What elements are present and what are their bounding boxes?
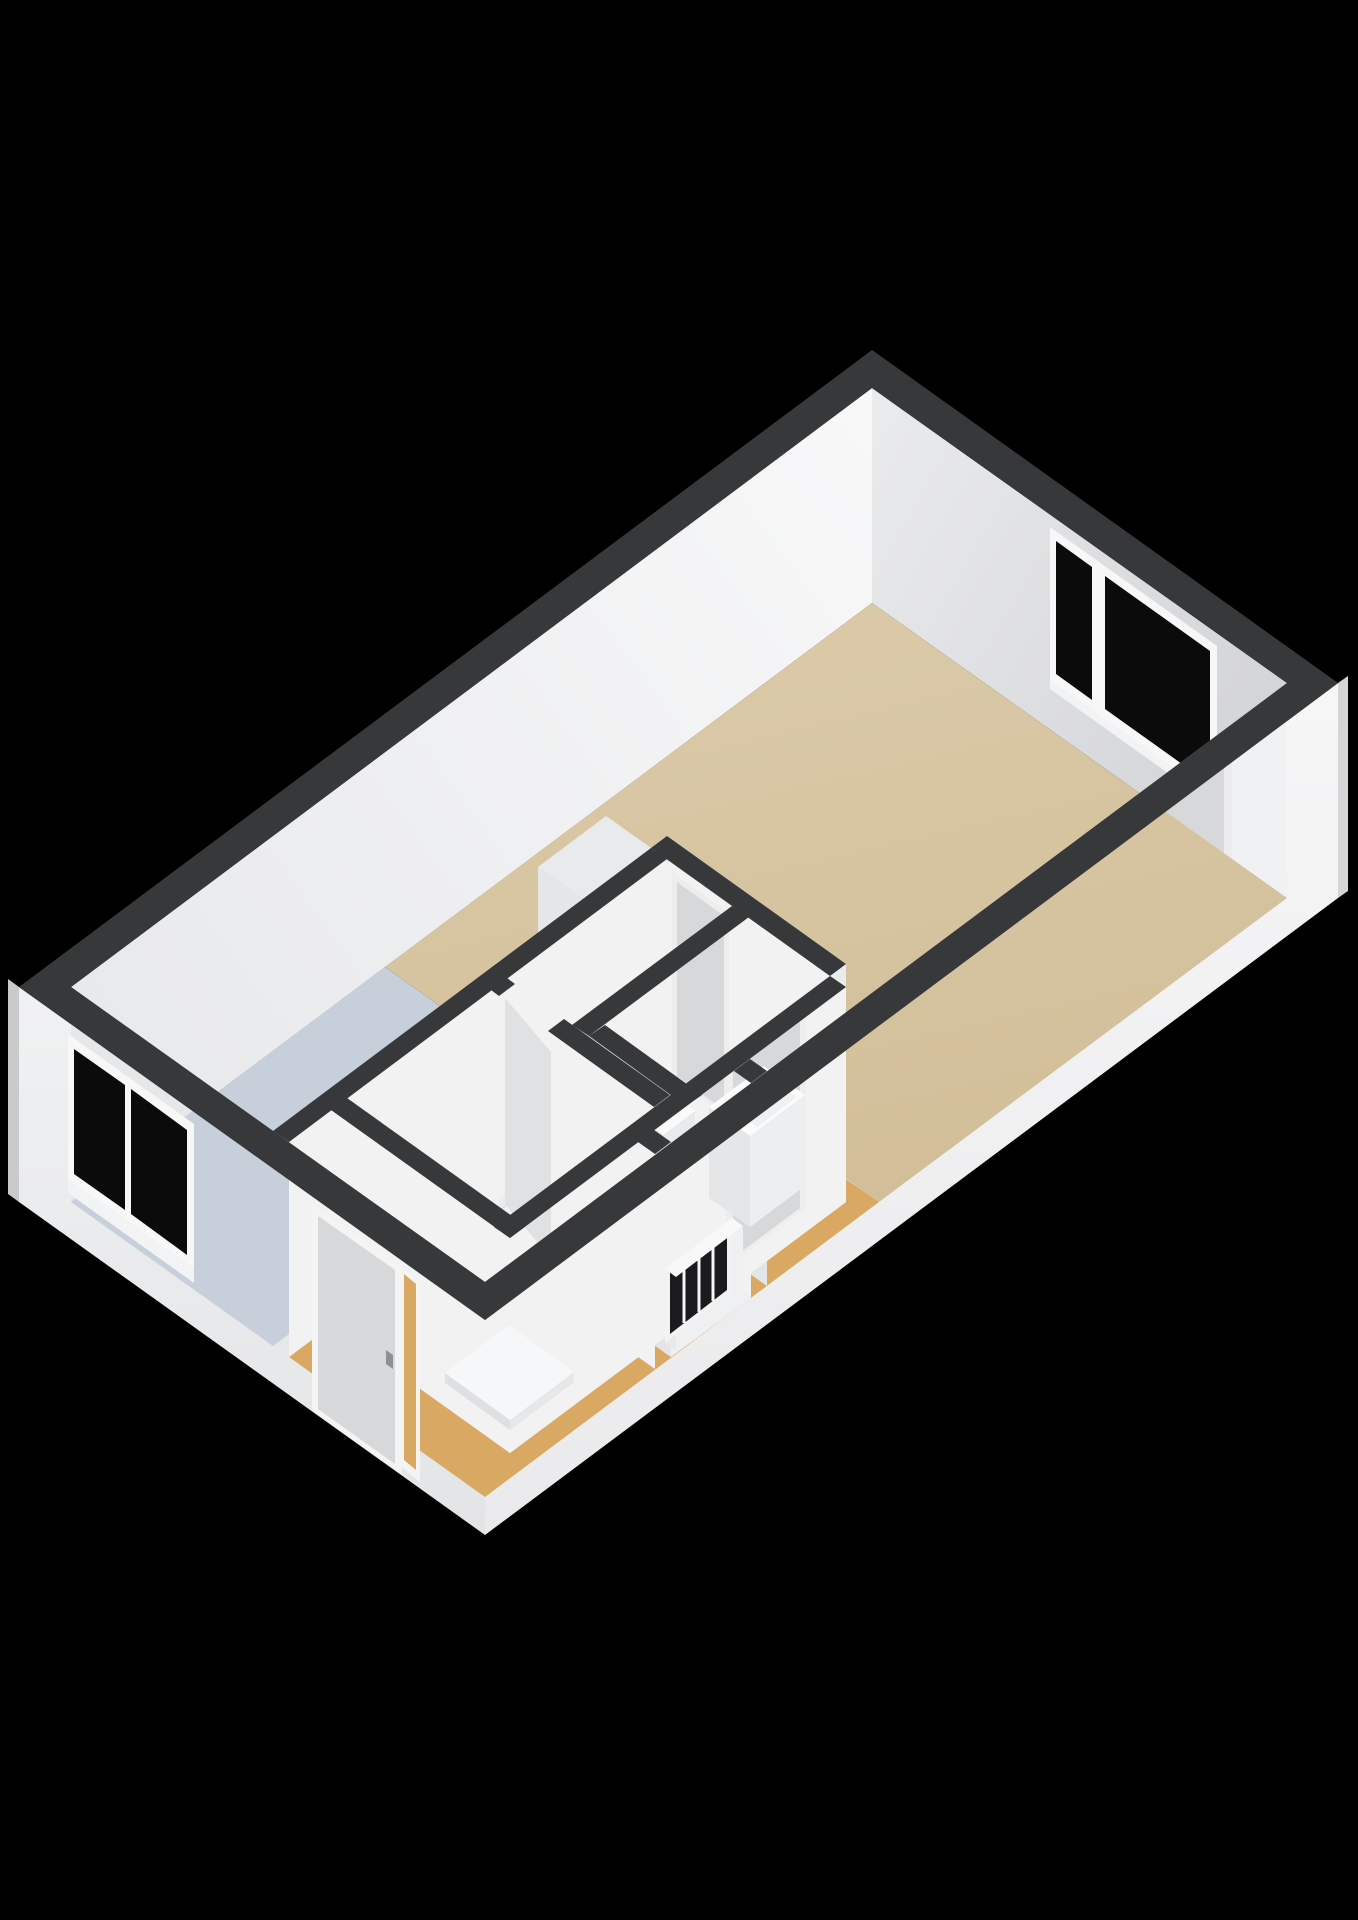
entrance-sidelight	[404, 1274, 416, 1470]
floorplan-stage	[0, 0, 1358, 1920]
bathroom-top-wall-seg1-front	[491, 990, 499, 1211]
floorplan-3d-render	[0, 0, 1358, 1920]
window-back-pane-left	[1056, 541, 1092, 700]
wall-right-outer-sliver	[1338, 676, 1348, 898]
wall-left-outer-sliver	[8, 979, 19, 1202]
